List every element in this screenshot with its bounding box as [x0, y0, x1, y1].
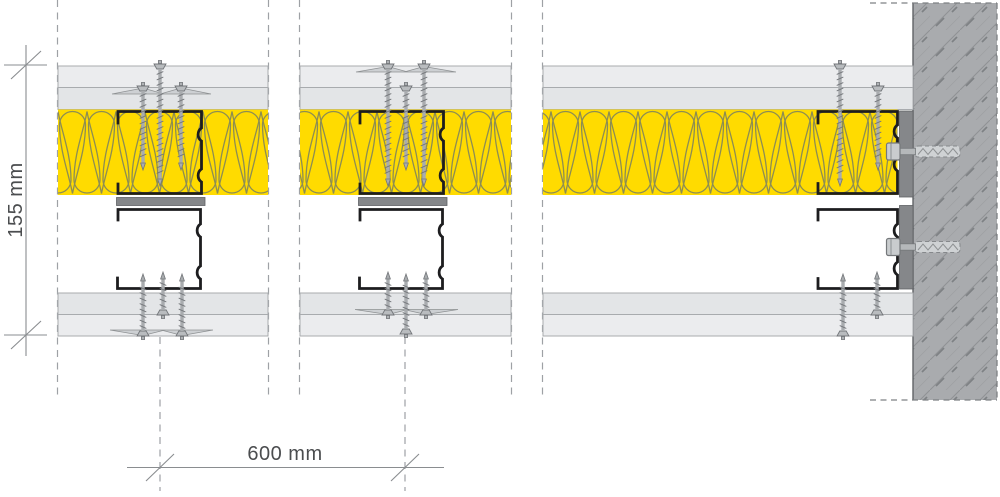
- insulation-seg1: [58, 110, 268, 196]
- dimension-155-label: 155 mm: [5, 162, 27, 237]
- dimension-600-label: 600 mm: [247, 443, 322, 465]
- construction-detail-page: 155 mm 600 mm: [0, 0, 1000, 497]
- board-top-inner-seg3: [543, 88, 913, 110]
- concrete-wall: [870, 3, 997, 400]
- junction-bar-stud2: [359, 198, 448, 206]
- board-bottom-inner-seg3: [543, 293, 913, 315]
- concrete-wall-body: [913, 3, 997, 400]
- wall-profile-lower: [818, 210, 898, 289]
- construction-detail-drawing: 155 mm 600 mm: [0, 0, 1000, 497]
- board-top-outer-seg3: [543, 66, 913, 88]
- board-bottom-outer-seg3: [543, 315, 913, 337]
- stud1-lower-c-profile: [118, 210, 201, 289]
- mineral-wool-insulation: [58, 110, 898, 196]
- board-top-inner-seg1: [58, 88, 268, 110]
- stud2-lower-c-profile: [360, 210, 443, 289]
- insulation-seg3: [543, 110, 898, 196]
- junction-bar-stud1: [117, 198, 206, 206]
